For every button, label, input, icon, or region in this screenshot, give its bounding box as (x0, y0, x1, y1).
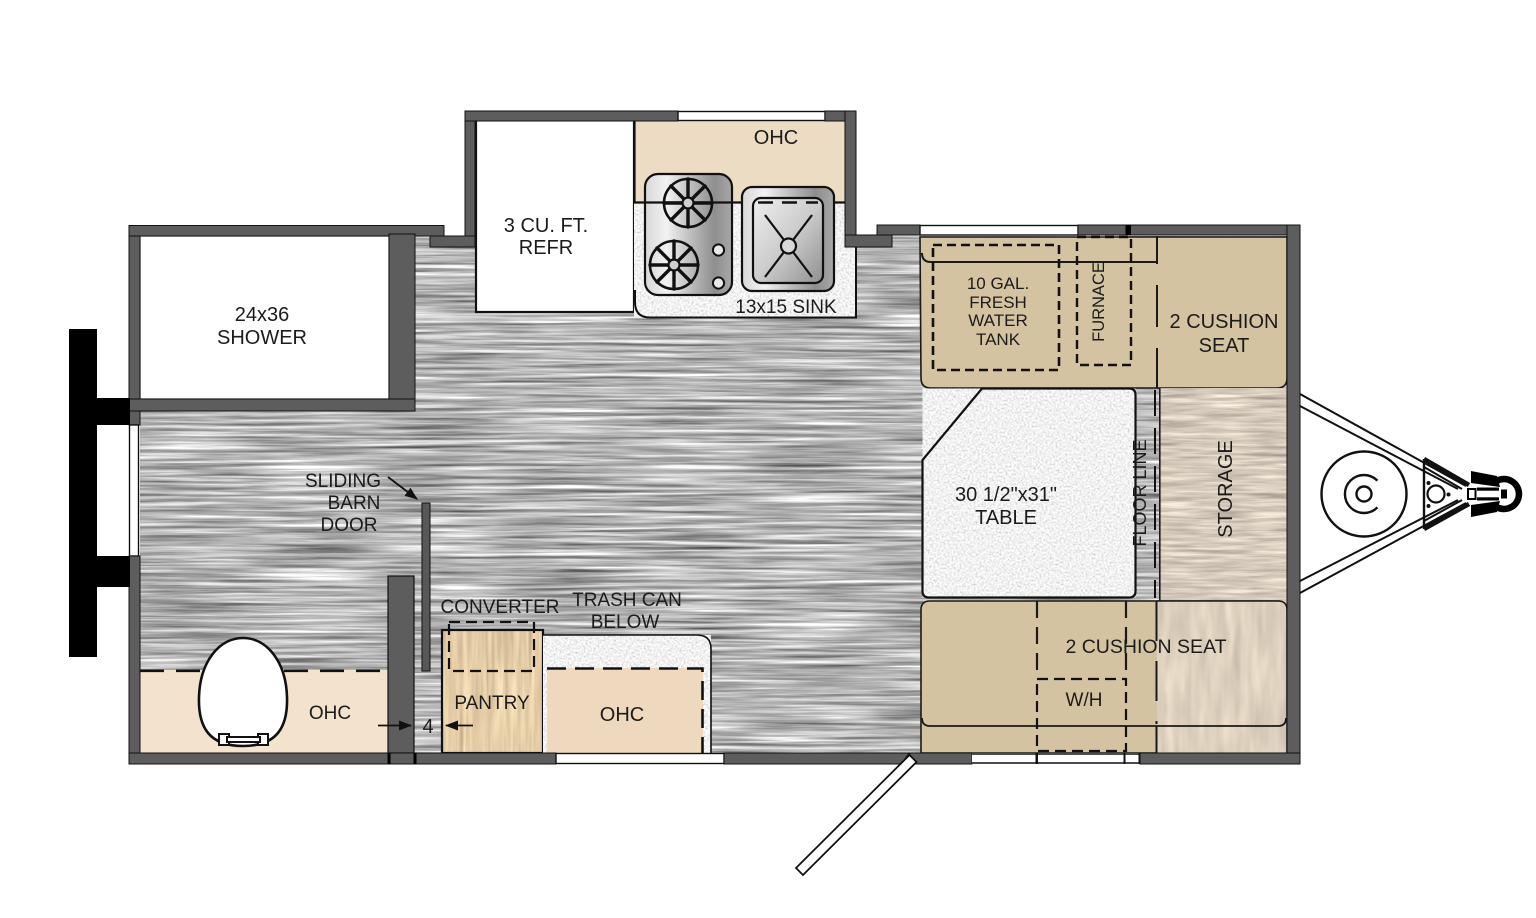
svg-text:CONVERTER: CONVERTER (441, 597, 560, 618)
svg-text:30 1/2"x31": 30 1/2"x31" (955, 484, 1057, 506)
svg-text:3 CU. FT.: 3 CU. FT. (504, 215, 588, 237)
svg-text:BELOW: BELOW (591, 612, 660, 633)
svg-text:FRESH: FRESH (969, 293, 1027, 312)
svg-text:10 GAL.: 10 GAL. (967, 274, 1029, 293)
svg-text:TABLE: TABLE (975, 507, 1037, 529)
svg-text:BARN: BARN (328, 493, 381, 514)
svg-text:FURNACE: FURNACE (1090, 262, 1108, 342)
svg-text:OHC: OHC (754, 127, 798, 149)
svg-text:4: 4 (422, 716, 433, 738)
svg-text:SLIDING: SLIDING (305, 471, 381, 492)
svg-text:OHC: OHC (600, 704, 644, 726)
svg-text:PANTRY: PANTRY (454, 693, 530, 714)
svg-text:2 CUSHION SEAT: 2 CUSHION SEAT (1065, 636, 1226, 658)
svg-text:REFR: REFR (519, 237, 573, 259)
svg-text:TRASH CAN: TRASH CAN (572, 590, 682, 611)
svg-text:OHC: OHC (309, 703, 351, 724)
svg-text:WATER: WATER (968, 311, 1028, 330)
svg-text:DOOR: DOOR (321, 515, 378, 536)
svg-text:TANK: TANK (976, 330, 1021, 349)
svg-text:SHOWER: SHOWER (217, 327, 307, 349)
svg-text:FLOOR LINE: FLOOR LINE (1130, 439, 1150, 546)
svg-text:13x15 SINK: 13x15 SINK (735, 297, 837, 318)
svg-text:2 CUSHION: 2 CUSHION (1170, 311, 1279, 333)
svg-text:W/H: W/H (1066, 690, 1103, 711)
svg-text:24x36: 24x36 (235, 304, 290, 326)
svg-text:SEAT: SEAT (1199, 335, 1250, 357)
svg-text:STORAGE: STORAGE (1215, 440, 1237, 537)
